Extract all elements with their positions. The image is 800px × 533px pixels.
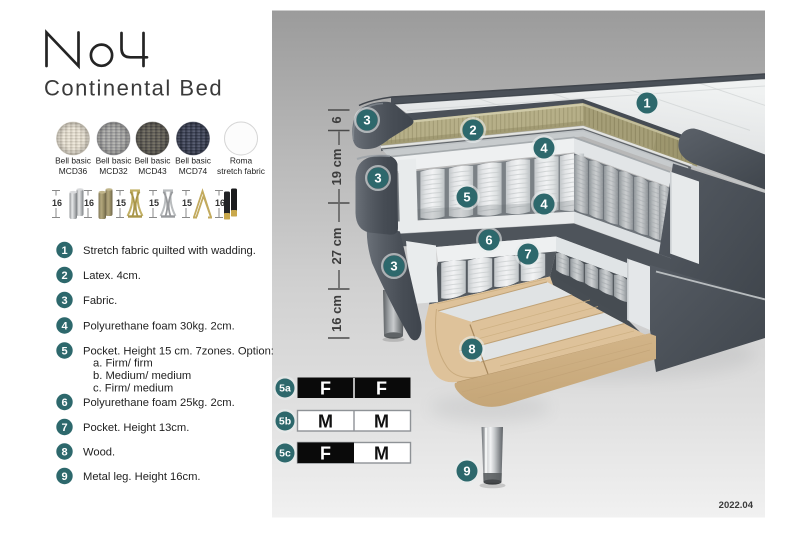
svg-text:Pocket. Height 13cm.: Pocket. Height 13cm. <box>83 422 189 434</box>
svg-text:15: 15 <box>182 198 192 208</box>
svg-text:Bell basic: Bell basic <box>96 156 132 166</box>
svg-text:Bell basic: Bell basic <box>175 156 211 166</box>
svg-text:MCD36: MCD36 <box>59 166 88 176</box>
svg-text:stretch fabric: stretch fabric <box>217 166 265 176</box>
svg-text:M: M <box>374 412 389 432</box>
svg-text:Pocket. Height 15 cm. 7zones.: Pocket. Height 15 cm. 7zones. Option: <box>83 346 274 358</box>
svg-text:Stretch fabric quilted with wa: Stretch fabric quilted with wadding. <box>83 245 256 257</box>
svg-text:1: 1 <box>61 245 67 257</box>
svg-text:MCD43: MCD43 <box>138 166 167 176</box>
svg-text:MCD74: MCD74 <box>179 166 208 176</box>
svg-text:5: 5 <box>463 190 470 205</box>
svg-text:15: 15 <box>116 198 126 208</box>
svg-text:2: 2 <box>61 270 67 282</box>
svg-text:3: 3 <box>390 259 397 274</box>
svg-text:F: F <box>320 444 331 464</box>
svg-text:16: 16 <box>215 198 225 208</box>
svg-text:Bell basic: Bell basic <box>135 156 171 166</box>
svg-text:Latex. 4cm.: Latex. 4cm. <box>83 270 141 282</box>
svg-text:5b: 5b <box>279 416 291 428</box>
svg-text:5: 5 <box>61 345 67 357</box>
svg-text:Bell basic: Bell basic <box>55 156 91 166</box>
svg-text:16: 16 <box>52 198 62 208</box>
svg-text:Wood.: Wood. <box>83 447 115 459</box>
svg-text:b. Medium/ medium: b. Medium/ medium <box>93 370 191 382</box>
svg-text:MCD32: MCD32 <box>99 166 128 176</box>
svg-text:Polyurethane foam 30kg. 2cm.: Polyurethane foam 30kg. 2cm. <box>83 321 235 333</box>
svg-text:M: M <box>318 412 333 432</box>
svg-text:9: 9 <box>463 464 470 479</box>
svg-text:3: 3 <box>363 113 370 128</box>
svg-text:Metal leg. Height 16cm.: Metal leg. Height 16cm. <box>83 471 201 483</box>
svg-text:7: 7 <box>61 422 67 434</box>
svg-text:15: 15 <box>149 198 159 208</box>
svg-text:19 cm: 19 cm <box>329 149 344 186</box>
svg-text:4: 4 <box>540 141 548 156</box>
svg-text:8: 8 <box>61 446 67 458</box>
svg-text:7: 7 <box>524 247 531 262</box>
svg-text:1: 1 <box>643 96 650 111</box>
svg-text:a. Firm/ firm: a. Firm/ firm <box>93 358 153 370</box>
svg-text:2022.04: 2022.04 <box>719 500 754 511</box>
svg-text:F: F <box>376 379 387 399</box>
svg-text:8: 8 <box>468 342 475 357</box>
svg-text:5a: 5a <box>279 383 291 395</box>
svg-text:Continental Bed: Continental Bed <box>44 76 223 101</box>
svg-text:4: 4 <box>61 320 68 332</box>
svg-text:6: 6 <box>61 397 67 409</box>
svg-text:6: 6 <box>329 116 344 123</box>
svg-text:16: 16 <box>84 198 94 208</box>
svg-text:M: M <box>374 444 389 464</box>
svg-text:Polyurethane foam 25kg. 2cm.: Polyurethane foam 25kg. 2cm. <box>83 397 235 409</box>
svg-text:Roma: Roma <box>230 156 253 166</box>
svg-text:3: 3 <box>374 171 381 186</box>
svg-text:16 cm: 16 cm <box>329 295 344 332</box>
svg-text:c. Firm/ medium: c. Firm/ medium <box>93 383 173 395</box>
svg-text:4: 4 <box>540 197 548 212</box>
svg-text:27 cm: 27 cm <box>329 228 344 265</box>
svg-text:5c: 5c <box>279 448 291 460</box>
svg-text:2: 2 <box>469 123 476 138</box>
svg-text:3: 3 <box>61 295 67 307</box>
svg-text:6: 6 <box>485 233 492 248</box>
svg-text:9: 9 <box>61 471 67 483</box>
svg-text:Fabric.: Fabric. <box>83 295 117 307</box>
svg-text:F: F <box>320 379 331 399</box>
